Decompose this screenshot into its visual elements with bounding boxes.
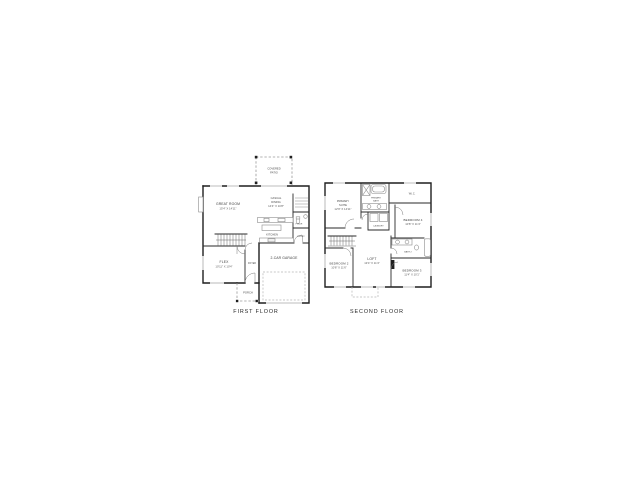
entry-label: ENTRY <box>297 236 305 238</box>
powder-room-fixtures <box>296 215 307 224</box>
primary-bath-label-2: BATH <box>373 199 379 202</box>
casual-dining-dims: 14'4" X 10'8" <box>268 204 284 208</box>
wic-label: W.I.C. <box>409 193 416 196</box>
stairs-second-floor <box>328 237 356 247</box>
foyer-label: FOYER <box>248 263 256 265</box>
great-room-label: GREAT ROOM <box>216 202 240 206</box>
bath2-fixtures <box>392 239 431 256</box>
primary-suite-dims: 12'9" X 14'11" <box>334 207 351 211</box>
bedroom3-dims: 11'4" X 10'1" <box>404 273 420 277</box>
powder-label: PWDR <box>296 224 303 226</box>
first-floor-windows <box>199 186 302 303</box>
bedroom4-dims: 10'8" X 11'4" <box>405 222 421 226</box>
casual-dining-label-1: CASUAL <box>271 196 282 200</box>
great-room-dims: 15'4" X 14'11" <box>219 206 236 210</box>
lower-roof-outline <box>352 287 378 297</box>
covered-patio-label-2: PATIO <box>270 171 278 175</box>
second-floor-title: SECOND FLOOR <box>350 309 404 315</box>
first-floor-title: FIRST FLOOR <box>233 309 278 315</box>
kitchen-fixtures <box>258 218 294 243</box>
covered-patio-label-1: COVERED <box>267 167 280 171</box>
stairs-first-floor <box>216 235 246 246</box>
laundry-label: LAUNDRY <box>373 225 384 228</box>
primary-suite-label-1: PRIMARY <box>337 199 349 203</box>
garage-label: 2-CAR GARAGE <box>270 256 298 260</box>
second-floor-plan: PRIMARY SUITE 12'9" X 14'11" PRIMARY BAT… <box>325 183 431 315</box>
loft-dims: 13'4" X 11'4" <box>364 261 380 265</box>
covered-patio: COVERED PATIO <box>255 156 292 185</box>
garage-apron <box>263 272 305 300</box>
porch-label: PORCH <box>243 291 253 295</box>
kitchen-label: KITCHEN <box>266 232 278 236</box>
bedroom2-dims: 10'8" X 11'6" <box>331 266 347 270</box>
first-floor-plan: COVERED PATIO <box>199 156 309 315</box>
laundry-fixtures <box>370 214 388 222</box>
flex-dims: 10'11" X 10'4" <box>215 264 232 268</box>
floorplan-sheet: COVERED PATIO <box>0 0 640 480</box>
primary-bath-label-1: PRIMARY <box>371 197 381 200</box>
pantry-shelves <box>295 198 308 207</box>
bath2-label: BATH 2 <box>404 251 412 254</box>
flex-label: FLEX <box>220 260 230 264</box>
